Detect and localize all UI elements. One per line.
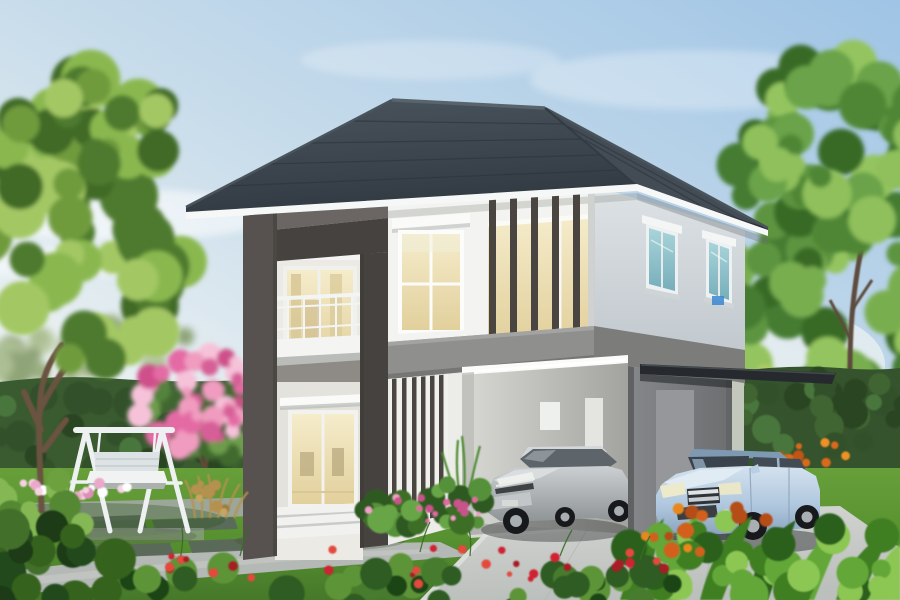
right-bg-blob <box>798 266 826 294</box>
bed-left-blob <box>20 480 27 487</box>
photo-stage <box>0 0 900 600</box>
fg-right-green-blob <box>762 527 796 561</box>
fg-red-blob <box>507 571 512 576</box>
fg-mid-blob <box>442 566 462 586</box>
fg-red-blob <box>414 579 423 588</box>
fg-red-blob <box>168 553 174 559</box>
bed-left-blob <box>94 478 105 489</box>
base-shrubs-blob <box>472 497 478 503</box>
hedge-right-tex-blob <box>831 393 850 412</box>
tan-grass-blob <box>210 500 222 512</box>
cloud <box>300 40 560 80</box>
orange-brom-blob <box>664 542 680 558</box>
hedge-right-tex-blob <box>810 395 833 418</box>
hedge-left-tex-blob <box>63 382 97 416</box>
pink-bush-blob <box>181 387 191 397</box>
base-shrubs-blob <box>432 511 437 516</box>
fg-left-dark-blob <box>60 524 85 549</box>
fg-red-blob <box>328 546 336 554</box>
pink-bush-blob <box>153 365 169 381</box>
pink-bush-blob <box>127 403 152 428</box>
fg-red-blob <box>625 558 634 567</box>
hedge-right-tex-blob <box>868 373 890 395</box>
interior-door <box>585 398 603 448</box>
left-canopy-blob <box>2 106 39 143</box>
interior-furniture <box>332 448 344 476</box>
fg-mid-blob <box>360 558 392 590</box>
fg-right-green-blob <box>730 569 755 594</box>
base-shrubs-blob <box>416 505 422 511</box>
fg-red-blob <box>165 562 174 571</box>
left-canopy-blob <box>10 242 45 277</box>
fg-red-blob <box>324 566 333 575</box>
left-canopy-blob <box>104 95 140 131</box>
orange-brom-blob <box>678 523 694 539</box>
left-canopy-blob <box>85 338 126 379</box>
tan-grass-blob <box>195 494 203 502</box>
fg-red-blob <box>248 574 256 582</box>
base-shrubs-blob <box>460 501 469 510</box>
fg-right-green-blob <box>865 518 899 552</box>
wall-emblem <box>712 296 724 305</box>
orange-brom-blob <box>683 544 692 553</box>
orange-bop-blob <box>821 458 830 467</box>
left-canopy-blob <box>48 196 93 241</box>
house-exterior-render <box>0 0 900 600</box>
left-canopy-blob <box>45 79 83 117</box>
orange-brom-blob <box>762 514 772 524</box>
base-shrubs-blob <box>451 516 456 521</box>
headlight <box>718 482 742 495</box>
fg-right-green-blob <box>814 513 846 545</box>
fg-red-blob <box>513 561 519 567</box>
left-canopy-blob <box>117 259 159 301</box>
hedge-right-tex-blob <box>755 381 779 405</box>
tan-grass-blob <box>201 485 215 499</box>
frame-left-bar <box>243 212 277 560</box>
fg-red-blob <box>550 553 560 563</box>
fg-red-blob <box>430 545 437 552</box>
base-shrubs-blob <box>476 512 481 517</box>
bed-left-blob <box>122 483 131 492</box>
base-shrubs-blob <box>394 497 401 504</box>
fg-red-blob <box>412 566 420 574</box>
fg-red-blob <box>183 556 189 562</box>
fg-red-blob <box>653 557 661 565</box>
pink-bush-blob <box>230 356 242 368</box>
base-shrubs-blob <box>439 476 456 493</box>
corner-shading <box>588 186 594 330</box>
slat <box>531 192 538 332</box>
fg-right-green-blob <box>868 576 888 596</box>
pink-bush-blob <box>192 410 203 421</box>
left-canopy-blob <box>119 317 150 348</box>
water-heater <box>540 402 560 430</box>
orange-bop-blob <box>841 451 850 460</box>
orange-bop-blob <box>820 438 829 447</box>
left-canopy-blob <box>55 344 84 373</box>
slat <box>489 195 496 336</box>
base-shrubs-blob <box>418 494 425 501</box>
fg-red-blob <box>209 568 218 577</box>
fg-red-blob <box>228 561 237 570</box>
right-canopy-blob <box>848 196 896 244</box>
fg-left-dark-blob <box>94 538 136 580</box>
base-shrubs-blob <box>443 499 450 506</box>
orange-bop-blob <box>796 443 802 449</box>
orange-brom-blob <box>695 547 705 557</box>
left-canopy-blob <box>77 142 121 186</box>
fg-mid-blob <box>553 576 576 599</box>
bed-left-blob <box>35 488 43 496</box>
fg-mid-blob <box>133 565 161 593</box>
fg-red-blob <box>529 569 538 578</box>
hedge-right-tex-blob <box>866 394 882 410</box>
right-canopy-blob <box>839 81 887 129</box>
base-shrubs-blob <box>468 478 491 501</box>
pink-bush-blob <box>202 379 224 401</box>
pink-bush-blob <box>200 421 221 442</box>
orange-brom-blob <box>673 503 684 514</box>
fg-red-blob <box>482 559 491 568</box>
pillar-left-edge <box>628 366 634 540</box>
fg-right-green-blob <box>837 557 869 589</box>
fg-left-light-blob <box>47 468 70 491</box>
fg-red-blob <box>614 559 624 569</box>
orange-brom-blob <box>649 533 658 542</box>
slat <box>573 189 580 329</box>
fg-right-green-blob <box>787 559 820 592</box>
interior-furniture <box>300 452 314 476</box>
fg-red-blob <box>498 547 505 554</box>
orange-bop-blob <box>831 441 839 449</box>
slat <box>552 190 559 330</box>
orange-brom-blob <box>697 510 708 521</box>
fg-red-blob <box>564 563 572 571</box>
wheel-hub <box>561 513 570 522</box>
fg-red-blob <box>625 548 634 557</box>
right-canopy-blob <box>760 147 795 182</box>
license-plate <box>502 500 518 506</box>
wheel-hub <box>510 515 522 527</box>
frame-left-inner-edge <box>273 212 277 556</box>
bench-backrest <box>94 452 160 473</box>
left-canopy-blob <box>139 94 173 128</box>
side-window-1 <box>642 215 682 300</box>
pink-bush-blob <box>231 372 244 385</box>
sliding-door-recess <box>275 382 366 522</box>
orange-brom-blob <box>665 532 674 541</box>
upper-front-window <box>392 213 470 340</box>
wheel-hub <box>614 506 624 516</box>
orange-brom-blob <box>732 508 748 524</box>
hedge-right-tex-blob <box>853 432 872 451</box>
pink-bush-blob <box>201 358 219 376</box>
fg-red-blob <box>659 564 669 574</box>
left-canopy-blob <box>137 130 179 172</box>
tan-grass-blob <box>197 481 204 488</box>
base-shrubs-blob <box>365 507 372 514</box>
slat <box>510 193 517 333</box>
bed-left-blob <box>83 487 90 494</box>
window-reflection <box>402 234 460 252</box>
fg-mid-blob <box>663 575 681 593</box>
wheel-hub <box>802 512 813 523</box>
fg-red-blob <box>458 545 467 554</box>
right-canopy-blob <box>809 165 831 187</box>
base-shrubs-blob <box>426 505 434 513</box>
fg-right-green-blob <box>872 560 891 579</box>
pink-bush-blob <box>223 405 236 418</box>
fg-mid-blob <box>172 566 197 591</box>
base-shrubs-blob <box>425 519 429 523</box>
